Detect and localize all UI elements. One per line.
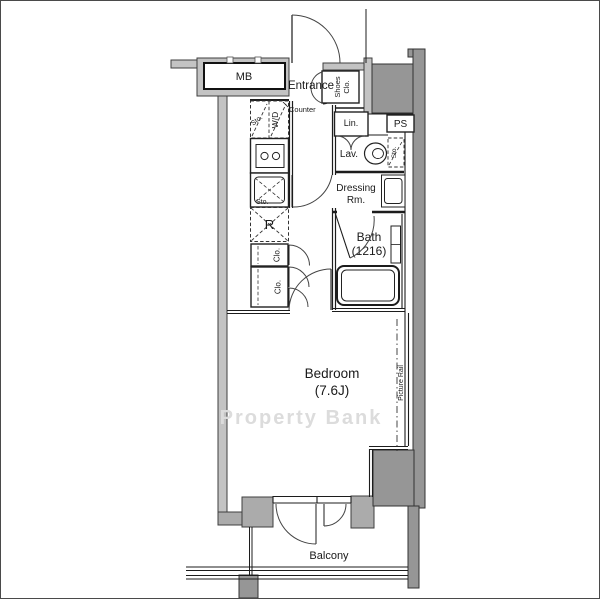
mb-tick-2 <box>255 57 261 63</box>
dressing-room: Dressing Rm. <box>292 175 405 207</box>
label-bedroom: Bedroom <box>305 366 360 381</box>
wall-balcony-step-right <box>351 496 374 528</box>
dressing-door-arc <box>293 175 332 207</box>
closet-1 <box>251 244 288 266</box>
label-sink-storage: Sto. <box>256 199 269 206</box>
wall-balcony-step-left <box>242 497 273 527</box>
label-shoes-closet-2: Clo. <box>342 80 351 93</box>
bedroom: Bedroom (7.6J) Picture Rail <box>305 319 405 451</box>
bathtub <box>337 266 399 305</box>
wall-dark-lower-strip <box>408 506 419 588</box>
label-bath-size: (1216) <box>352 244 387 258</box>
hallway-doors <box>289 245 331 310</box>
label-lavatory: Lav. <box>340 149 358 160</box>
label-dressing-2: Rm. <box>347 195 365 206</box>
balcony-door-leaves <box>316 504 324 544</box>
label-linen: Lin. <box>344 118 359 128</box>
label-entrance: Entrance <box>288 80 334 92</box>
mb-tick-1 <box>227 57 233 63</box>
bath-door-leaf <box>336 214 351 258</box>
wall-bedroom-top <box>227 311 290 314</box>
wall-dark-block-bottom-right <box>373 450 414 506</box>
entrance-door-arc <box>292 15 340 63</box>
wall-above-shoes-closet <box>323 63 364 70</box>
label-closet-2: Clo. <box>274 280 283 294</box>
balcony-door-arcs <box>276 504 346 544</box>
balcony: Balcony <box>276 504 349 562</box>
balcony-window-wall <box>273 496 351 503</box>
label-pipe-space: PS <box>394 119 408 130</box>
label-balcony: Balcony <box>309 550 349 562</box>
linen-door-arcs <box>337 136 365 150</box>
watermark-text: Property Bank <box>220 407 383 429</box>
bath-room: Bath (1216) <box>336 214 401 305</box>
wall-stub-top-left <box>171 60 198 68</box>
wall-left-side <box>218 96 227 513</box>
bedroom-door-arc <box>289 269 331 310</box>
label-dressing-1: Dressing <box>336 183 375 194</box>
label-closet-1: Clo. <box>273 248 282 262</box>
wall-right-of-shoes-closet <box>364 58 372 114</box>
label-bedroom-size: (7.6J) <box>315 383 350 398</box>
closet-door-arcs <box>289 245 310 307</box>
label-refrigerator: R <box>265 217 274 232</box>
label-meter-box: MB <box>236 71 253 83</box>
label-shoes-closet-1: Shoes <box>333 76 342 98</box>
label-washer-dryer: W/D <box>270 112 280 129</box>
balcony-left-edge <box>250 527 253 576</box>
label-picture-rail: Picture Rail <box>398 365 405 401</box>
lavatory-area: Lin. PS Lav. Sto. <box>335 112 415 167</box>
balcony-rail-lines <box>186 567 408 579</box>
wall-dark-right-strip <box>413 49 425 508</box>
wall-bath-bottom <box>332 309 405 312</box>
label-lavatory-storage: Sto. <box>391 147 398 159</box>
kitchen-fixtures: Sto. W/D Sto. R Clo. Clo. <box>250 101 288 307</box>
label-bath: Bath <box>357 230 382 244</box>
label-counter: Counter <box>289 105 316 114</box>
floor-plan: MB Sto. W/D Sto. <box>0 0 600 599</box>
floor-plan-canvas: MB Sto. W/D Sto. <box>1 1 599 598</box>
